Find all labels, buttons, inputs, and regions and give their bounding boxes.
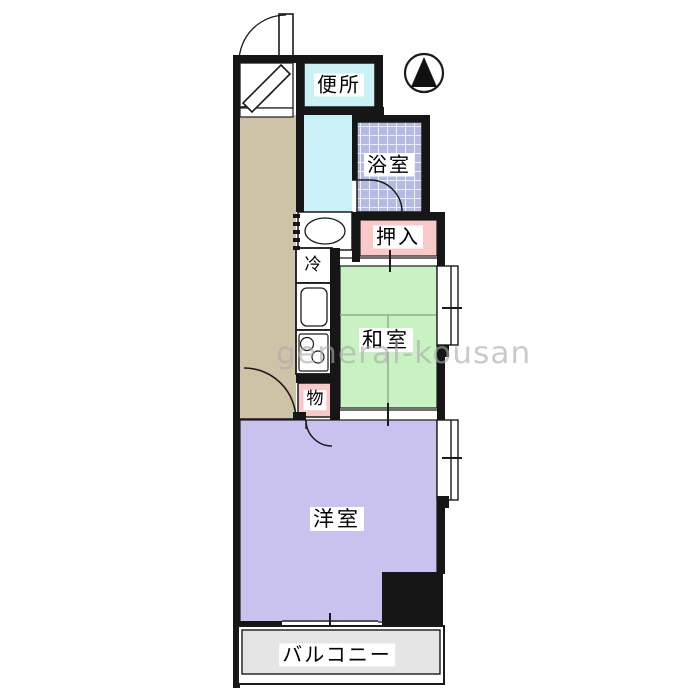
sink-basin-icon bbox=[301, 288, 327, 326]
floor-plan-canvas: 便所 浴室 押入 冷 和室 物 洋室 バルコニー general-kousan bbox=[0, 0, 700, 700]
toilet-label: 便所 bbox=[314, 74, 364, 97]
wall-top bbox=[233, 55, 383, 63]
north-arrow-icon bbox=[405, 54, 443, 92]
genkan-step bbox=[240, 108, 293, 117]
wall-toilet-bottom bbox=[296, 107, 384, 115]
wall-bath-right bbox=[422, 115, 430, 220]
wall-closet-right bbox=[437, 212, 445, 266]
watermark-text: general-kousan bbox=[276, 336, 531, 371]
wall-right-low bbox=[437, 508, 445, 574]
pillar-block bbox=[382, 572, 443, 628]
entrance-area bbox=[239, 14, 293, 117]
wall-kitchen-washitsu bbox=[330, 248, 340, 420]
wall-hall-washroom bbox=[296, 63, 304, 212]
storage-label: 物 bbox=[304, 390, 327, 410]
fridge-label: 冷 bbox=[302, 256, 325, 276]
wall-right-step2 bbox=[437, 496, 449, 508]
wall-left bbox=[233, 55, 240, 688]
japanese-room-window-bay bbox=[437, 266, 458, 345]
western-room-label: 洋室 bbox=[310, 507, 364, 531]
wall-bath-bottom bbox=[352, 212, 445, 220]
wall-storage-left bbox=[293, 412, 306, 420]
closet-label: 押入 bbox=[373, 226, 423, 249]
wall-bath-left bbox=[352, 122, 357, 180]
wall-stove-storage bbox=[296, 374, 332, 383]
western-room-window-bay bbox=[437, 420, 458, 500]
entrance-door-leaf bbox=[279, 14, 293, 62]
washbasin-bowl-icon bbox=[305, 218, 345, 244]
washroom-floor bbox=[304, 115, 352, 212]
balcony-label: バルコニー bbox=[279, 644, 395, 667]
wall-bath-top bbox=[352, 115, 430, 122]
wall-closet-left bbox=[352, 212, 360, 262]
bath-label: 浴室 bbox=[364, 154, 414, 177]
